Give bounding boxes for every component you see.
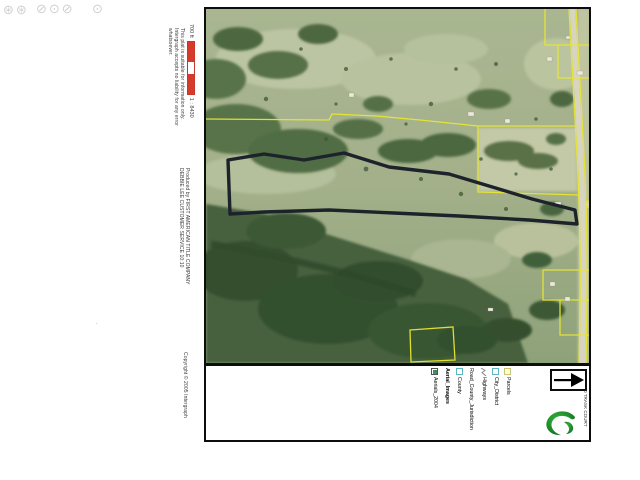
north-arrow-icon [552,371,585,389]
legend-item: Aerial_Images [441,368,453,438]
scale-bar [188,41,196,95]
disclaimer-line: This plat is suitable for information on… [178,28,184,168]
parcel-swatch-icon [504,368,511,375]
intergraph-logo-icon [544,408,580,438]
legend-item: County [453,368,465,438]
legend-item: Parcels [502,368,514,438]
legend-item-label: Road_County_Jurisdiction [468,368,474,430]
intergraph-logo [544,408,580,438]
legend-items-wrap: ParcelsCity_DistrictHighwaysRoad_County_… [428,368,514,438]
scale-ratio-label: 1 : 8430 [189,98,195,118]
aerial-map [204,7,591,365]
highway-line-symbol [480,368,487,375]
copyright-text: Copyright © 2005 Intergraph [181,352,187,432]
legend-item-label: Aerial_Images [444,368,450,404]
legend-item: Highways [477,368,489,438]
legend-item-label: Parcels [505,377,511,395]
legend-item-label: Aerials_2004 [432,377,438,408]
scan-artifact-speck: · [95,318,100,329]
producer-line: Produced by FIRST AMERICAN TITLE COMPANY [183,168,189,296]
legend-panel: ParcelsCity_DistrictHighwaysRoad_County_… [204,364,591,442]
county-swatch-icon [456,368,463,375]
map-title-wrap: 0 TRASK COURT [580,390,588,426]
legend-item: Road_County_Jurisdiction [465,368,477,438]
legend-items: ParcelsCity_DistrictHighwaysRoad_County_… [428,368,514,438]
scanned-map-page: { "artifacts": { "stamp1": "⊛⊛", "stamp2… [0,0,640,480]
disclaimer-line: Intergraph accepts no liability for any … [172,28,178,168]
scan-artifact-stamp: ⊛⊛ [3,2,29,18]
north-arrow-box [550,369,587,391]
scale-distance-label: 700 ft [189,24,195,38]
scan-artifact-stamp: ⊙ [92,1,105,17]
disclaimer-block: This plat is suitable for information on… [166,28,184,168]
legend-item-label: Highways [481,377,487,400]
aerial-image-checkbox-icon [431,368,438,375]
scale-strip: 700 ft 1 : 8430 [184,24,199,119]
legend-item-label: City_District [493,377,499,405]
producer-block: Produced by FIRST AMERICAN TITLE COMPANY… [173,168,189,296]
legend-item: Aerials_2004 [429,368,441,438]
scan-artifact-stamp: ⊘⊙⊘ [36,1,75,17]
district-swatch-icon [492,368,499,375]
legend-item-label: County [456,377,462,394]
legend-item: City_District [490,368,502,438]
aerial-photo [206,9,589,363]
copyright-block: Copyright © 2005 Intergraph [176,352,187,432]
map-title: 0 TRASK COURT [580,390,588,426]
